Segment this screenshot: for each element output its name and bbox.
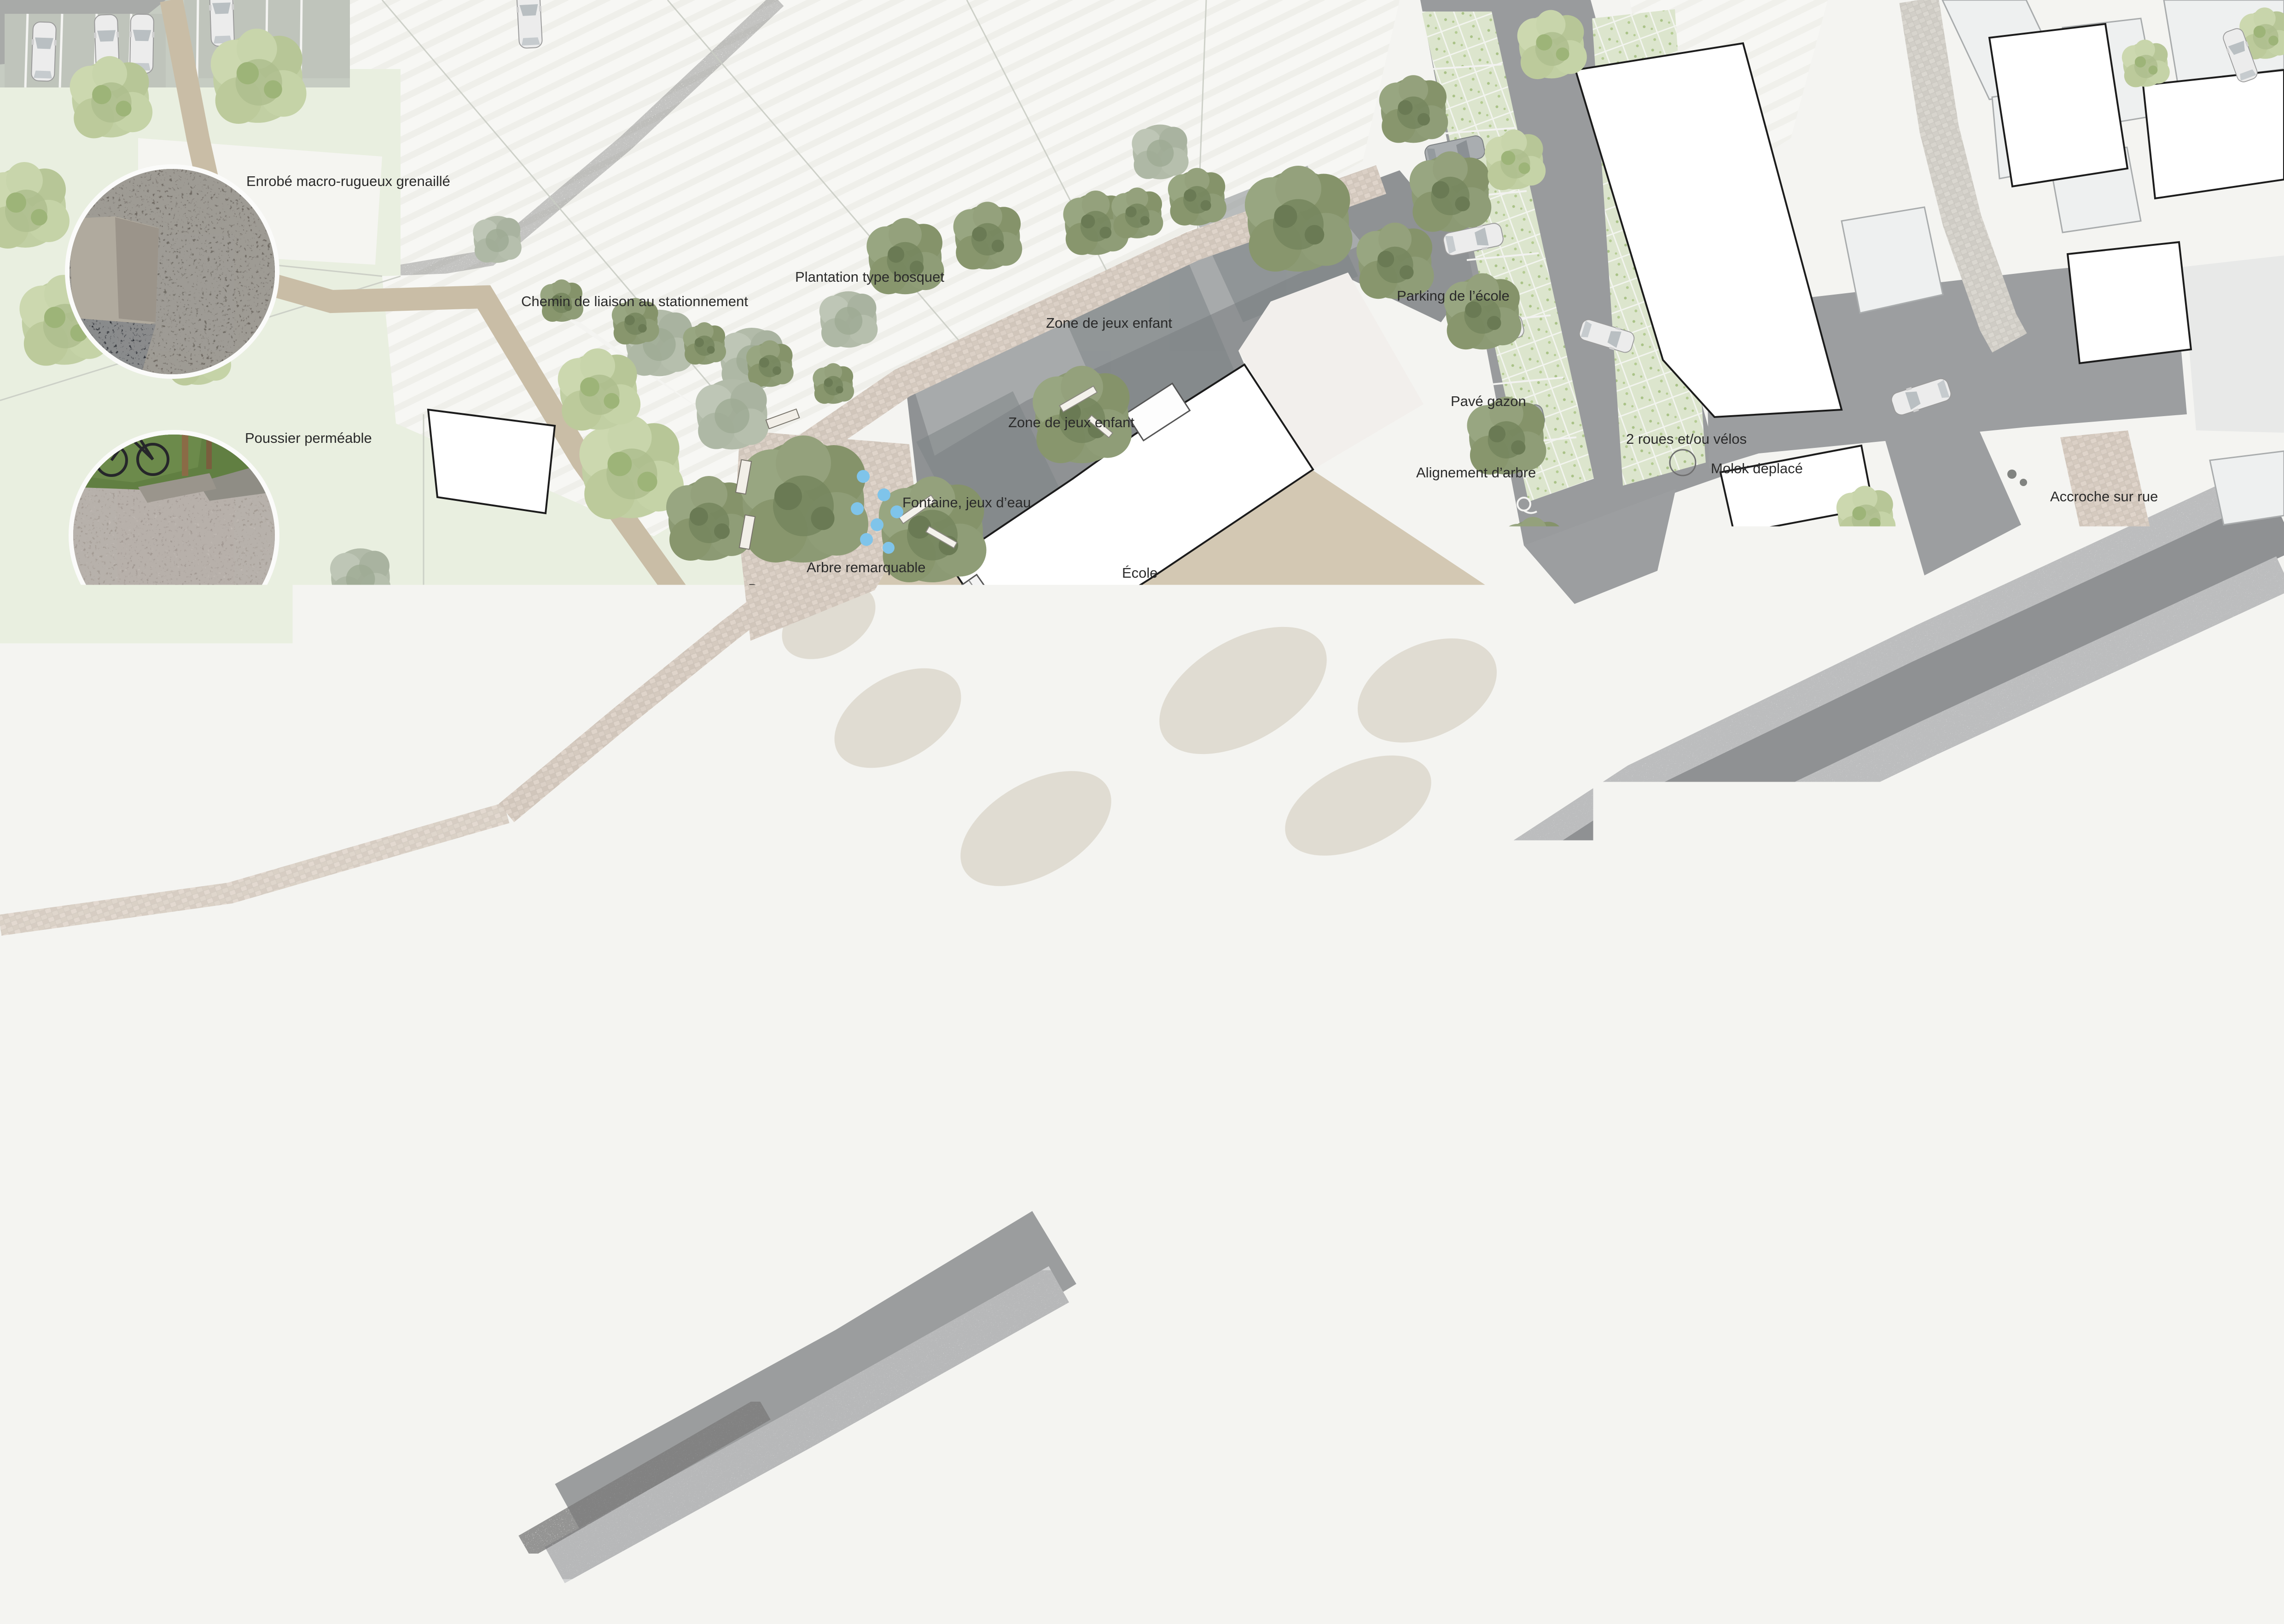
svg-text:Pavé gazon: Pavé gazon (1451, 393, 1526, 409)
svg-text:Un espace unifié: Un espace unifié (853, 1075, 959, 1091)
svg-text:2: 2 (121, 1553, 126, 1564)
svg-text:Zone de jeux enfant: Zone de jeux enfant (1008, 414, 1134, 430)
svg-text:4: 4 (146, 1553, 151, 1564)
svg-text:Accroche sur rue: Accroche sur rue (2050, 488, 2158, 505)
svg-text:10m: 10m (218, 1553, 237, 1564)
svg-text:Bancs: Bancs (748, 581, 788, 597)
svg-text:aux usagers de l’immeuble: aux usagers de l’immeuble (871, 990, 1040, 1006)
svg-text:Places minute: Places minute (1390, 806, 1480, 822)
svg-text:Pavés naturels: Pavés naturels (245, 688, 339, 704)
svg-text:Enrobé bitumineux: Enrobé bitumineux (1137, 1170, 1256, 1186)
svg-text:Accès véhicule maintenu: Accès véhicule maintenu (871, 973, 1029, 989)
svg-text:Fontaine, jeux d’eau: Fontaine, jeux d’eau (902, 494, 1031, 510)
svg-text:N: N (30, 1545, 41, 1560)
svg-text:Épicerie: Épicerie (1368, 951, 1420, 967)
svg-text:Enrobé macro-rugueux grenaillé: Enrobé macro-rugueux grenaillé (1147, 1255, 1351, 1271)
svg-text:Molok déplacé: Molok déplacé (1711, 460, 1803, 476)
svg-text:Arbre remarquable: Arbre remarquable (807, 559, 925, 575)
svg-text:6: 6 (171, 1553, 177, 1564)
svg-text:à l’usage des écoliers: à l’usage des écoliers (941, 899, 1079, 916)
svg-text:Zone de jeux enfant: Zone de jeux enfant (827, 661, 953, 678)
svg-text:1:200: 1:200 (297, 1558, 351, 1583)
svg-text:ARCHITECTES: ARCHITECTES (1467, 1589, 1591, 1600)
svg-text:Escaliers-gradins: Escaliers-gradins (1302, 636, 1412, 652)
svg-text:age: age (1646, 1573, 1669, 1589)
svg-text:Ville de Sierre - Secteur Mura: Ville de Sierre - Secteur Muraz - étude … (722, 1566, 1447, 1581)
svg-text:École: École (1122, 565, 1158, 581)
svg-text:Enrobé macro-rugueux grenaillé: Enrobé macro-rugueux grenaillé (246, 173, 450, 189)
svg-text:Extension des jardins: Extension des jardins (941, 882, 1077, 898)
svg-text:Pavés porphyre sentier des vig: Pavés porphyre sentier des vignes (649, 680, 868, 696)
svg-text:2 roues et/ou vélos: 2 roues et/ou vélos (1626, 431, 1747, 447)
svg-text:Plantation type bosquet: Plantation type bosquet (795, 269, 944, 285)
svg-text:Parking vélos: Parking vélos (1090, 931, 1175, 947)
svg-text:Architectes-paysagistes: Architectes-paysagistes (1838, 1567, 1945, 1578)
svg-text:Nouvelle fontaine: Nouvelle fontaine (1561, 886, 1672, 902)
svg-text:Pavés naturels: Pavés naturels (918, 1303, 1012, 1319)
svg-text:Café du 1er Août: Café du 1er Août (987, 1137, 1094, 1153)
svg-text:Pétanque: Pétanque (1219, 679, 1280, 695)
svg-text:Parking vélos: Parking vélos (1531, 694, 1616, 710)
svg-text:Bancs: Bancs (746, 1130, 785, 1146)
svg-text:Zone de jeux enfant: Zone de jeux enfant (1046, 315, 1172, 331)
svg-text:Chemin de liaison au stationne: Chemin de liaison au stationnement (521, 293, 748, 309)
svg-text:Arbre remarquable: Arbre remarquable (1583, 1370, 1702, 1386)
svg-text:Poussier perméable: Poussier perméable (850, 749, 977, 766)
svg-text:Parking de l’école: Parking de l’école (1397, 288, 1510, 304)
svg-text:Bancs: Bancs (1612, 814, 1652, 830)
svg-text:0: 0 (95, 1553, 101, 1564)
svg-text:Nouvelle fontaine: Nouvelle fontaine (1778, 1391, 1889, 1407)
svg-text:Poussier perméable: Poussier perméable (245, 430, 372, 446)
svg-text:Alignement d’arbre: Alignement d’arbre (1416, 464, 1536, 481)
svg-text:Pass: Pass (1621, 1559, 1652, 1574)
svg-text:Bancs: Bancs (1580, 1415, 1619, 1431)
svg-text:8: 8 (197, 1553, 202, 1564)
svg-text:Jardins familiaux: Jardins familiaux (756, 860, 863, 876)
svg-text:Arbre remarquable: Arbre remarquable (1582, 771, 1701, 787)
